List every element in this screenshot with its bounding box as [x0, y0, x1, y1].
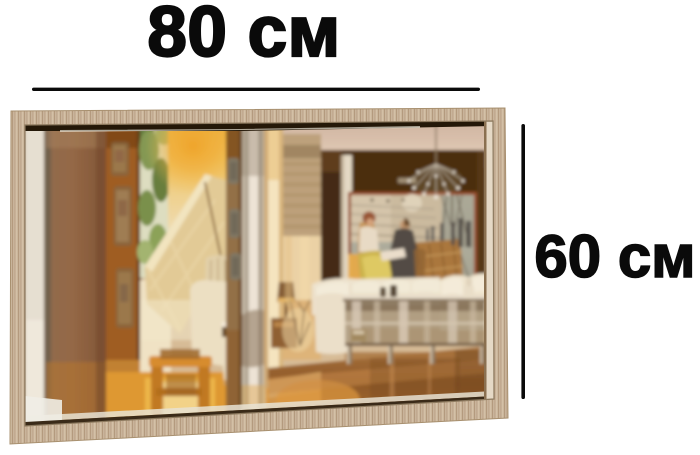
svg-text:80 см: 80 см: [147, 0, 340, 72]
svg-text:60 см: 60 см: [534, 223, 695, 290]
